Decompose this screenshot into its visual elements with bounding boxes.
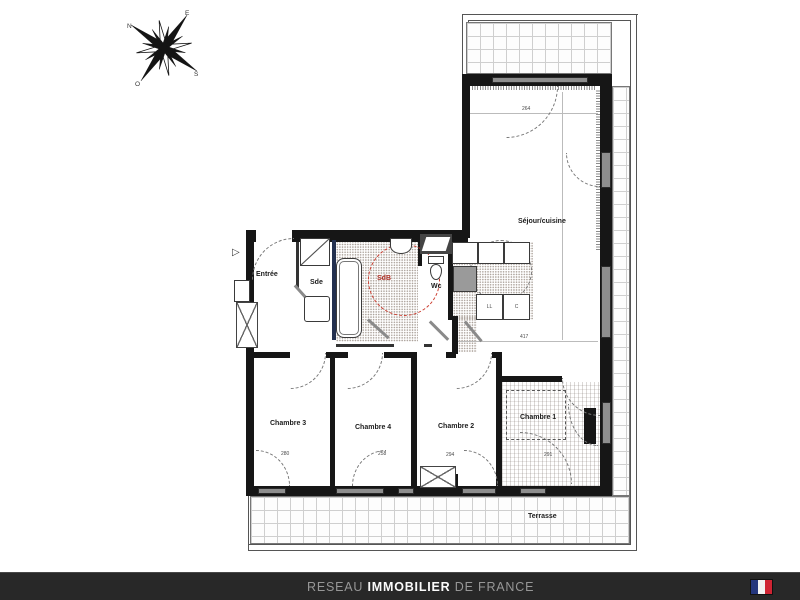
compass-rose-icon: N E S O (122, 6, 206, 90)
door-swing-arc (352, 450, 386, 486)
washbasin (390, 238, 412, 254)
dimension-line (562, 92, 563, 340)
window (602, 402, 611, 444)
boundary-line (462, 14, 463, 75)
wall-segment (252, 352, 290, 358)
entry-arrow-icon: ▷ (232, 248, 240, 258)
kitchen-appliance (453, 266, 477, 292)
closet (420, 466, 456, 488)
toilet (430, 264, 442, 280)
room-label-chambre3: Chambre 3 (270, 420, 306, 427)
kitchen-unit-c-label: C (515, 304, 519, 310)
wall-segment (296, 242, 299, 288)
door-swing-arc (566, 153, 600, 187)
french-flag-icon (750, 579, 773, 595)
terrace-top (466, 22, 612, 74)
door-swing-arc (506, 86, 558, 138)
technical-duct (234, 280, 250, 302)
closet (236, 302, 258, 348)
footer-bar: RESEAU IMMOBILIER DE FRANCE (0, 572, 800, 600)
boundary-line (248, 496, 249, 550)
kitchen-unit-c: C (503, 294, 530, 320)
wall-segment (496, 376, 562, 382)
kitchen-counter (452, 242, 478, 264)
wall-segment (446, 352, 456, 358)
room-label-chambre1: Chambre 1 (520, 414, 556, 421)
washbasin (304, 296, 330, 322)
dimension-label: 294 (446, 452, 454, 458)
compass-north-label: N (127, 23, 132, 30)
window (520, 488, 546, 494)
bathtub (336, 258, 362, 338)
kitchen-unit-ll-label: LL (487, 304, 493, 310)
flag-stripe-red (765, 580, 772, 594)
window (601, 266, 611, 338)
terrace-right-strip (612, 86, 630, 496)
window (492, 77, 588, 83)
wc-shelf (420, 234, 452, 254)
wc-shelf-front (422, 237, 451, 251)
room-label-chambre4: Chambre 4 (355, 424, 391, 431)
flag-stripe-white (758, 580, 765, 594)
dimension-label: 417 (520, 334, 528, 340)
wall-segment (462, 74, 470, 238)
boundary-line (468, 20, 630, 21)
kitchen-counter (504, 242, 530, 264)
terrace-bottom (250, 496, 630, 544)
boundary-line (462, 14, 638, 15)
window (258, 488, 286, 494)
window (398, 488, 414, 494)
door-swing-arc (347, 353, 383, 389)
shower-tray (300, 238, 330, 266)
compass-south-label: S (194, 71, 199, 78)
room-label-sdb: SdB (377, 275, 391, 282)
wall-segment (336, 344, 394, 347)
boundary-line (630, 20, 631, 544)
door-swing-arc (464, 450, 498, 486)
compass-west-label: O (135, 81, 140, 88)
dimension-label: 280 (281, 451, 289, 457)
kitchen-unit-ll: LL (476, 294, 503, 320)
wall-segment (411, 352, 417, 486)
agency-name-part2: IMMOBILIER (368, 580, 451, 594)
window (601, 152, 611, 188)
kitchen-counter (478, 242, 504, 264)
door-swing-arc (456, 353, 492, 389)
window (336, 488, 384, 494)
dimension-line (458, 341, 598, 342)
window (462, 488, 496, 494)
boundary-line (248, 550, 637, 551)
wall-segment (424, 344, 432, 347)
agency-logo-text: RESEAU IMMOBILIER DE FRANCE (307, 580, 534, 594)
wall-segment (330, 358, 335, 486)
boundary-line (248, 544, 631, 545)
room-label-entree: Entrée (256, 271, 278, 278)
boundary-line (636, 14, 637, 550)
agency-name-part3: DE FRANCE (455, 580, 534, 594)
wall-segment (452, 316, 458, 354)
door-swing-arc (290, 353, 326, 389)
compass-east-label: E (185, 10, 190, 17)
room-label-wc: Wc (431, 283, 442, 290)
room-label-chambre2: Chambre 2 (438, 423, 474, 430)
wall-segment (496, 376, 502, 486)
toilet (428, 256, 444, 264)
agency-name-part1: RESEAU (307, 580, 363, 594)
floorplan-page: { "compass": { "n": "N", "e": "E", "s": … (0, 0, 800, 600)
room-label-sejour: Séjour/cuisine (518, 218, 566, 225)
room-label-sde: Sde (310, 279, 323, 286)
flag-stripe-blue (751, 580, 758, 594)
door-leaf (429, 320, 449, 340)
room-label-terrasse: Terrasse (528, 513, 557, 520)
